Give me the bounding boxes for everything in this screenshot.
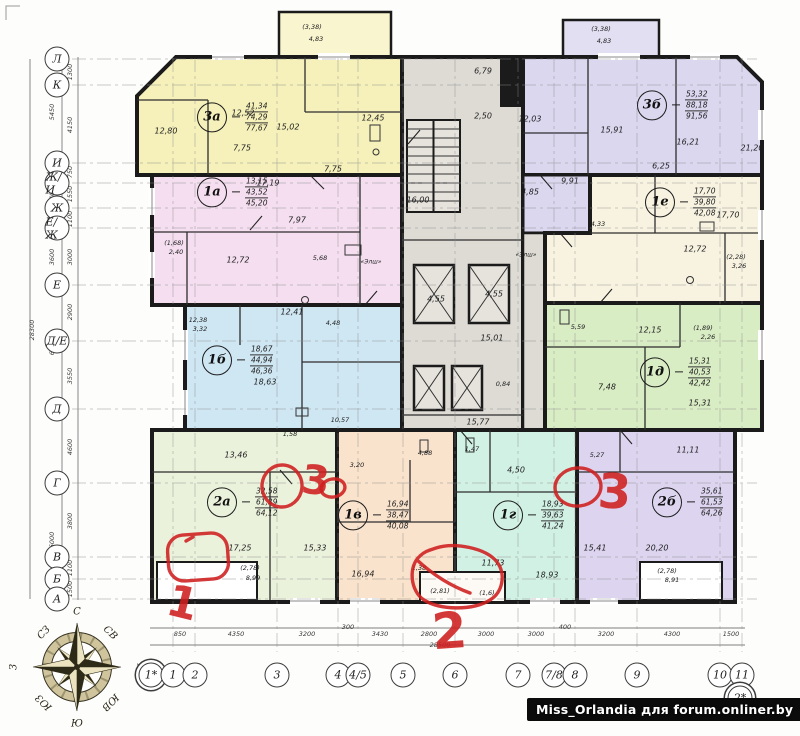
room-area-label: 12,80 bbox=[155, 127, 178, 136]
room-area-label: (1,89) bbox=[693, 324, 713, 332]
annotation-number-3-left: 3 bbox=[299, 457, 331, 506]
room-area-label: 2,26 bbox=[701, 333, 715, 341]
compass-label-ЮВ: ЮВ bbox=[99, 691, 120, 712]
room-area-label: 17,25 bbox=[229, 544, 252, 553]
apartment-code: 1е bbox=[645, 187, 675, 217]
balcony-top-left bbox=[279, 12, 391, 57]
room-area-label: (2,78) bbox=[240, 564, 260, 572]
room-area-label: (1,6) bbox=[479, 589, 494, 597]
room-area-label: 3,20 bbox=[350, 461, 364, 469]
room-area-label: «Элш» bbox=[361, 259, 382, 266]
core-stairs-elevators bbox=[402, 57, 523, 430]
room-area-label: 12,38 bbox=[189, 316, 208, 324]
apartment-badge: 1б18,6744,9446,36 bbox=[202, 344, 273, 375]
room-area-label: 2,50 bbox=[474, 112, 492, 121]
dimension-label: 5450 bbox=[48, 104, 56, 121]
apartment-area-value: 91,56 bbox=[685, 111, 708, 121]
room-area-label: 7,75 bbox=[324, 165, 342, 174]
room-area-label: 5,27 bbox=[590, 451, 604, 459]
apartment-area-value: 64,12 bbox=[255, 508, 278, 518]
apartment-area-value: 42,42 bbox=[688, 378, 711, 388]
apartment-area-value: 46,36 bbox=[250, 366, 273, 376]
apartment-areas: 35,6161,5364,26 bbox=[700, 486, 723, 517]
apartment-area-value: 39,63 bbox=[541, 510, 564, 521]
apartment-areas: 13,1543,5245,20 bbox=[245, 176, 268, 207]
room-area-label: (3,38) bbox=[302, 23, 322, 31]
apartment-area-value: 42,08 bbox=[693, 208, 716, 218]
apartment-badge: 1е17,7039,8042,08 bbox=[645, 186, 716, 217]
apartment-area-value: 15,31 bbox=[688, 356, 711, 367]
room-area-label: 6,79 bbox=[474, 67, 492, 76]
axis-bubble-А: А bbox=[45, 587, 70, 612]
apartment-area-value: 41,24 bbox=[541, 521, 564, 531]
axis-bubble-11: 11 bbox=[730, 663, 755, 688]
apartment-code: 1в bbox=[338, 500, 368, 530]
apartment-area-value: 18,67 bbox=[250, 344, 273, 355]
room-area-label: 7,48 bbox=[598, 383, 616, 392]
room-area-label: 4,55 bbox=[485, 290, 503, 299]
room-area-label: 4,55 bbox=[427, 295, 445, 304]
room-area-label: (2,78) bbox=[657, 567, 677, 575]
windows bbox=[148, 53, 765, 605]
annotation-number-3-right: 3 bbox=[596, 463, 632, 521]
compass-label-СВ: СВ bbox=[101, 624, 119, 642]
axis-bubble-6: 6 bbox=[443, 663, 468, 688]
room-area-label: 3,32 bbox=[193, 325, 207, 333]
room-area-label: 1,38 bbox=[412, 564, 426, 572]
axis-bubble-Д: Д bbox=[45, 397, 70, 422]
apartment-code: 2б bbox=[652, 487, 682, 517]
room-area-label: 8,99 bbox=[246, 574, 260, 582]
room-area-label: 2,40 bbox=[169, 248, 183, 256]
room-area-label: «Элш» bbox=[516, 252, 537, 259]
room-area-label: 15,91 bbox=[601, 126, 624, 135]
axis-bubble-Е: Е bbox=[45, 273, 70, 298]
room-area-label: 4,88 bbox=[418, 449, 432, 457]
room-area-label: 4,33 bbox=[591, 220, 605, 228]
floor-plan-page: (3,38)4,83(3,38)4,8312,8012,5215,027,757… bbox=[0, 0, 800, 736]
apartment-area-value: 32,58 bbox=[255, 486, 278, 497]
apartment-areas: 17,7039,8042,08 bbox=[693, 186, 716, 217]
shaft-block bbox=[500, 57, 523, 107]
room-area-label: 1,58 bbox=[283, 430, 297, 438]
apartment-code: 3б bbox=[637, 90, 667, 120]
room-area-label: 13,46 bbox=[225, 451, 248, 460]
badge-leader-line bbox=[687, 502, 695, 503]
apartment-areas: 18,6744,9446,36 bbox=[250, 344, 273, 375]
apartment-areas: 32,5861,3964,12 bbox=[255, 486, 278, 517]
room-area-label: (1,68) bbox=[164, 239, 184, 247]
room-area-label: 21,20 bbox=[741, 144, 764, 153]
room-area-label: 7,97 bbox=[288, 216, 306, 225]
apartment-code: 1д bbox=[640, 357, 670, 387]
dimension-label: 28500 bbox=[430, 641, 451, 649]
axis-bubble-4/5: 4/5 bbox=[346, 663, 371, 688]
apartment-badge: 1а13,1543,5245,20 bbox=[197, 176, 268, 207]
apartment-badge: 2б35,6161,5364,26 bbox=[652, 486, 723, 517]
apartment-areas: 18,9339,6341,24 bbox=[541, 499, 564, 530]
room-area-label: 5,68 bbox=[313, 254, 327, 262]
room-area-label: 15,33 bbox=[304, 544, 327, 553]
dimension-label: 850 bbox=[174, 630, 186, 638]
dimension-label: 4150 bbox=[66, 117, 74, 134]
apartment-1a bbox=[152, 175, 402, 305]
room-area-label: 8,91 bbox=[665, 576, 679, 584]
dimension-label: 4600 bbox=[66, 439, 74, 456]
room-area-label: 4,48 bbox=[326, 319, 340, 327]
room-area-label: 15,77 bbox=[467, 418, 490, 427]
axis-bubble-Ж/И: Ж/И bbox=[45, 171, 70, 196]
apartment-area-value: 88,18 bbox=[685, 100, 708, 111]
room-area-label: 12,72 bbox=[227, 256, 250, 265]
apartment-badge: 1в16,9438,4740,08 bbox=[338, 499, 409, 530]
room-area-label: 12,72 bbox=[684, 245, 707, 254]
room-area-label: 10,57 bbox=[331, 416, 350, 424]
dimension-label: 1500 bbox=[723, 630, 740, 638]
watermark: Miss_Orlandia для forum.onliner.by bbox=[527, 698, 800, 721]
room-area-label: 15,31 bbox=[689, 399, 712, 408]
apartment-areas: 53,3288,1891,56 bbox=[685, 89, 708, 120]
room-area-label: (2,28) bbox=[726, 253, 746, 261]
apartment-area-value: 17,70 bbox=[693, 186, 716, 197]
room-area-label: 12,45 bbox=[362, 114, 385, 123]
room-area-label: (3,38) bbox=[591, 25, 611, 33]
apartment-3b-hall bbox=[523, 175, 590, 233]
axis-bubble-9: 9 bbox=[625, 663, 650, 688]
compass-label-СЗ: СЗ bbox=[35, 624, 53, 642]
axis-bubble-5: 5 bbox=[391, 663, 416, 688]
apartment-area-value: 61,39 bbox=[255, 497, 278, 508]
axis-bubble-3: 3 bbox=[265, 663, 290, 688]
apartment-badge: 2а32,5861,3964,12 bbox=[207, 486, 278, 517]
apartment-areas: 16,9438,4740,08 bbox=[386, 499, 409, 530]
room-area-label: 16,21 bbox=[677, 138, 700, 147]
apartment-code: 2а bbox=[207, 487, 237, 517]
axis-bubble-К: К bbox=[45, 73, 70, 98]
axis-bubble-Г: Г bbox=[45, 471, 70, 496]
room-area-label: 20,20 bbox=[646, 544, 669, 553]
apartment-area-value: 38,47 bbox=[386, 510, 409, 521]
room-area-label: 4,83 bbox=[309, 35, 323, 43]
apartment-badge: 3б53,3288,1891,56 bbox=[637, 89, 708, 120]
compass-label-С: С bbox=[73, 607, 81, 618]
room-area-label: 11,73 bbox=[482, 559, 505, 568]
apartment-area-value: 44,94 bbox=[250, 355, 273, 366]
badge-leader-line bbox=[672, 105, 680, 106]
axis-bubble-7: 7 bbox=[506, 663, 531, 688]
apartment-area-value: 13,15 bbox=[245, 176, 268, 187]
badge-leader-line bbox=[232, 117, 240, 118]
room-area-label: 15,01 bbox=[481, 334, 504, 343]
apartment-code: 1г bbox=[493, 500, 523, 530]
bath-fixtures bbox=[296, 125, 714, 452]
dimension-label: 3550 bbox=[66, 368, 74, 385]
dimension-label: 28300 bbox=[28, 320, 36, 341]
room-area-label: 18,93 bbox=[536, 571, 559, 580]
apartment-areas: 41,3474,2977,67 bbox=[245, 101, 268, 132]
room-area-label: 4,85 bbox=[521, 188, 539, 197]
dimension-label: 2900 bbox=[66, 304, 74, 321]
room-area-label: 15,02 bbox=[277, 123, 300, 132]
room-area-label: 4,50 bbox=[507, 466, 525, 475]
dimension-label: 400 bbox=[559, 623, 571, 631]
room-area-label: 5,59 bbox=[571, 323, 585, 331]
compass-label-З: З bbox=[9, 664, 20, 670]
dimension-label: 3600 bbox=[48, 249, 56, 266]
dimension-label: 2800 bbox=[421, 630, 438, 638]
core-strip bbox=[523, 233, 545, 430]
compass-label-ЮЗ: ЮЗ bbox=[34, 692, 55, 713]
dimension-label: 3000 bbox=[478, 630, 495, 638]
apartment-area-value: 53,32 bbox=[685, 89, 708, 100]
apartment-code: 1а bbox=[197, 177, 227, 207]
apartment-area-value: 16,94 bbox=[386, 499, 409, 510]
room-area-label: 16,94 bbox=[352, 570, 375, 579]
apartment-area-value: 41,34 bbox=[245, 101, 268, 112]
balcony-2b bbox=[640, 562, 722, 600]
room-area-label: 0,84 bbox=[496, 380, 510, 388]
annotation-number-1: 1 bbox=[162, 575, 204, 632]
apartment-badge: 1г18,9339,6341,24 bbox=[493, 499, 564, 530]
room-area-label: 7,75 bbox=[233, 144, 251, 153]
apartment-area-value: 18,93 bbox=[541, 499, 564, 510]
room-area-label: 1,47 bbox=[465, 445, 479, 453]
room-area-label: 15,41 bbox=[584, 544, 607, 553]
axis-bubble-Е/Ж: Е/Ж bbox=[45, 216, 70, 241]
apartment-area-value: 43,52 bbox=[245, 187, 268, 198]
apartment-area-value: 77,67 bbox=[245, 123, 268, 133]
apartment-code: 3а bbox=[197, 102, 227, 132]
room-area-label: 4,83 bbox=[597, 37, 611, 45]
apartment-area-value: 64,26 bbox=[700, 508, 723, 518]
apartment-area-value: 61,53 bbox=[700, 497, 723, 508]
apartment-areas: 15,3140,5342,42 bbox=[688, 356, 711, 387]
badge-leader-line bbox=[680, 202, 688, 203]
room-area-label: 6,25 bbox=[652, 162, 670, 171]
badge-leader-line bbox=[242, 502, 250, 503]
badge-leader-line bbox=[232, 192, 240, 193]
apartment-area-value: 40,08 bbox=[386, 521, 409, 531]
room-area-label: 17,70 bbox=[717, 211, 740, 220]
room-area-label: 11,11 bbox=[677, 446, 700, 455]
dimension-label: 300 bbox=[342, 623, 354, 631]
dimension-label: 3200 bbox=[598, 630, 615, 638]
dimension-label: 4350 bbox=[228, 630, 245, 638]
apartment-area-value: 45,20 bbox=[245, 198, 268, 208]
room-area-label: 12,15 bbox=[639, 326, 662, 335]
apartment-code: 1б bbox=[202, 345, 232, 375]
apartment-area-value: 35,61 bbox=[700, 486, 723, 497]
axis-bubble-8: 8 bbox=[563, 663, 588, 688]
apartment-badge: 1д15,3140,5342,42 bbox=[640, 356, 711, 387]
axis-bubble-Л: Л bbox=[45, 47, 70, 72]
dimension-label: 3000 bbox=[528, 630, 545, 638]
room-area-label: 12,41 bbox=[281, 308, 304, 317]
room-area-label: 18,63 bbox=[254, 378, 277, 387]
badge-leader-line bbox=[528, 515, 536, 516]
room-area-label: (2,81) bbox=[430, 587, 450, 595]
badge-leader-line bbox=[675, 372, 683, 373]
badge-leader-line bbox=[373, 515, 381, 516]
axis-bubble-Д/Е: Д/Е bbox=[45, 329, 70, 354]
apartment-badge: 3а41,3474,2977,67 bbox=[197, 101, 268, 132]
axis-bubble-2: 2 bbox=[183, 663, 208, 688]
room-area-label: 3,26 bbox=[732, 262, 746, 270]
apartment-area-value: 40,53 bbox=[688, 367, 711, 378]
apartment-area-value: 74,29 bbox=[245, 112, 268, 123]
dimension-label: 3430 bbox=[372, 630, 389, 638]
dimension-label: 4300 bbox=[664, 630, 681, 638]
dimension-label: 3000 bbox=[66, 249, 74, 266]
apartment-area-value: 39,80 bbox=[693, 197, 716, 208]
compass-label-Ю: Ю bbox=[71, 719, 83, 730]
room-area-label: 9,91 bbox=[561, 177, 579, 186]
dimension-label: 3200 bbox=[299, 630, 316, 638]
badge-leader-line bbox=[237, 360, 245, 361]
room-area-label: 16,00 bbox=[407, 196, 430, 205]
dimension-label: 3800 bbox=[66, 513, 74, 530]
room-area-label: 12,03 bbox=[519, 115, 542, 124]
